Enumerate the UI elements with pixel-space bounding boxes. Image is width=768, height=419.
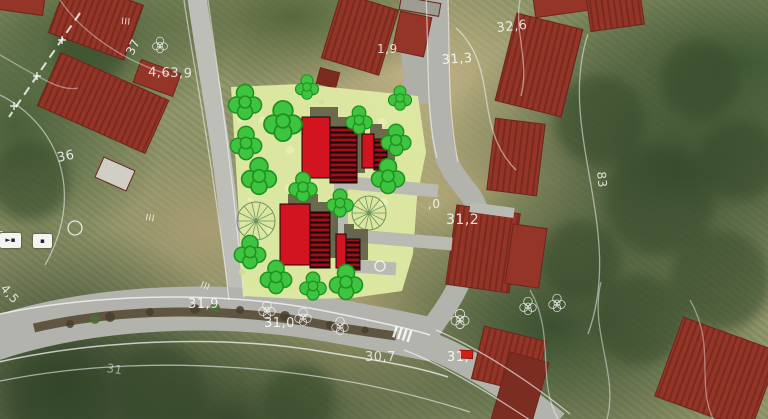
map-label: 31,2 [446,212,479,228]
roof [586,0,645,32]
aerial-site-plan-view: III374,63,91,931,332,6365III83,031,2III3… [0,0,768,419]
forest-blob [10,350,110,419]
aerial-building [586,0,645,32]
plan-speckle [286,146,295,155]
forest-blob [660,40,740,120]
map-control-badge-play[interactable]: ►▪ [0,233,21,248]
building-roof-hatched [310,212,330,268]
map-label: 36 [56,148,76,166]
median-shrub [362,327,369,334]
median-bush [90,314,100,324]
roof [487,118,545,196]
building-front [280,204,310,265]
bush-outline-icon [520,297,537,315]
map-label: 83 [594,171,610,189]
building-front [336,234,346,268]
building-front [302,117,330,178]
median-shrub [66,320,74,328]
play-icon: ►▪ [5,237,15,244]
map-label: ,0 [428,197,440,211]
aerial-building [0,0,45,16]
forest-blob [115,345,205,419]
aerial-building [487,118,545,196]
map-label: 31,0 [264,316,295,331]
map-label: 4,63,9 [148,65,193,82]
plan-speckle [239,269,246,276]
boundary-cross [10,102,18,110]
circle-symbol [68,221,82,235]
map-label: 30,7 [365,350,396,365]
roof [321,0,398,75]
building-roof-hatched [330,127,357,183]
bush-outline-icon [549,294,566,312]
bush-outline-icon [153,37,168,53]
map-label: 31,3 [441,51,473,68]
map-label: 31,9 [188,297,219,312]
map-label: III [121,17,131,28]
aerial-building [533,0,590,18]
roof [392,11,432,57]
forest-blob [670,230,768,330]
aerial-building [392,11,432,57]
map-control-badge-stop[interactable]: ▪ [33,234,52,248]
median-shrub [236,306,244,314]
plan-speckle [248,198,253,203]
roof [0,0,45,16]
map-label: 1,9 [377,42,398,56]
map-label: 31, [447,350,469,365]
map-label: 4,5 [0,282,22,307]
forest-blob [540,220,620,300]
forest-blob [265,365,335,419]
plan-speckle [320,100,325,105]
building-front [362,134,374,168]
median-shrub [146,308,154,316]
map-canvas: III374,63,91,931,332,6365III83,031,2III3… [0,0,768,419]
roof [95,157,135,191]
map-label: III [144,213,155,224]
roof [533,0,590,18]
aerial-building [321,0,398,75]
aerial-building [95,157,135,191]
median-shrub [105,312,115,322]
aerial-building [316,68,339,89]
roof [316,68,339,89]
map-label: 31 [106,361,124,377]
stop-icon: ▪ [40,238,45,245]
